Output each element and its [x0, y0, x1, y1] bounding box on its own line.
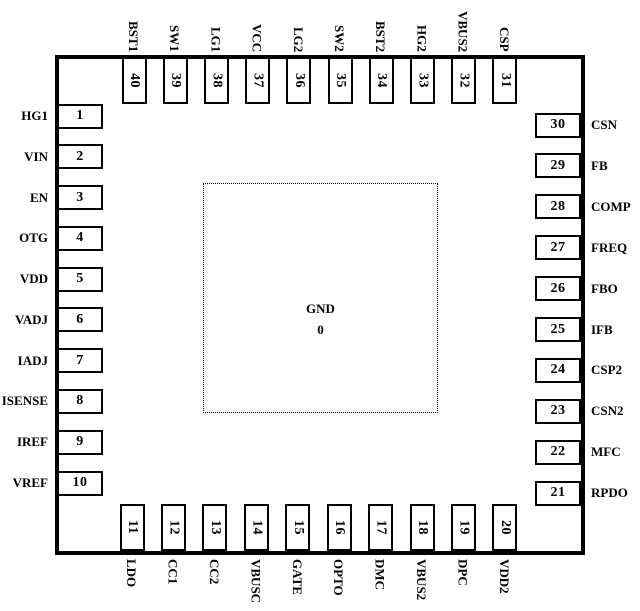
pin-box-right: 23 [535, 399, 581, 424]
pin-number: 9 [76, 434, 84, 450]
pin-box-bottom: 18 [410, 504, 435, 551]
pin-number: 6 [76, 312, 84, 328]
pin-box-left: 5 [57, 267, 103, 292]
pin-label-top: SW1 [166, 25, 182, 52]
pin-label-right: MFC [591, 444, 639, 460]
pin-box-left: 6 [57, 307, 103, 332]
pin-box-bottom: 15 [285, 504, 310, 551]
pin-box-right: 22 [535, 440, 581, 465]
pin-box-right: 25 [535, 317, 581, 342]
pin-label-right: FREQ [591, 240, 639, 256]
pin-label-left: VIN [0, 149, 48, 165]
pin-box-right: 26 [535, 276, 581, 301]
pin-box-top: 34 [369, 57, 394, 104]
pin-label-top: BST2 [372, 21, 388, 52]
pin-box-right: 28 [535, 194, 581, 219]
pin-label-left: VREF [0, 475, 48, 491]
pin-label-bottom: CC2 [206, 559, 222, 584]
pin-label-top: CSP [496, 27, 512, 52]
pin-number: 13 [207, 520, 223, 535]
center-pad-label: GND [306, 298, 335, 319]
pin-number: 1 [76, 108, 84, 124]
pin-label-bottom: VDD2 [496, 559, 512, 594]
center-pad-text: GND 0 [306, 298, 335, 340]
pin-number: 24 [551, 362, 566, 378]
pin-label-left: IREF [0, 434, 48, 450]
pin-box-top: 32 [451, 57, 476, 104]
chip-pinout-diagram: GND 0 1HG12VIN3EN4OTG5VDD6VADJ7IADJ8ISEN… [0, 0, 640, 611]
pin-label-bottom: OPTO [330, 559, 346, 596]
pin-number: 8 [76, 393, 84, 409]
pin-label-top: SW2 [331, 25, 347, 52]
pin-number: 7 [76, 353, 84, 369]
pin-box-bottom: 19 [451, 504, 476, 551]
pin-label-top: LG1 [207, 27, 223, 52]
pin-box-right: 30 [535, 113, 581, 138]
pin-number: 28 [551, 199, 566, 215]
pin-label-right: IFB [591, 322, 639, 338]
pin-box-left: 4 [57, 226, 103, 251]
center-pad-number: 0 [306, 319, 335, 340]
pin-label-bottom: VBUSC [247, 559, 263, 603]
pin-label-top: LG2 [290, 27, 306, 52]
pin-box-right: 29 [535, 153, 581, 178]
pin-number: 10 [73, 475, 88, 491]
pin-number: 23 [551, 403, 566, 419]
pin-label-bottom: VBUS2 [413, 559, 429, 600]
pin-number: 3 [76, 190, 84, 206]
pin-box-top: 35 [328, 57, 353, 104]
pin-number: 22 [551, 444, 566, 460]
pin-number: 35 [332, 73, 348, 88]
pin-number: 19 [456, 520, 472, 535]
pin-number: 21 [551, 485, 566, 501]
pin-number: 37 [250, 73, 266, 88]
pin-box-left: 2 [57, 144, 103, 169]
pin-box-top: 36 [286, 57, 311, 104]
pin-box-top: 39 [163, 57, 188, 104]
pin-label-left: VADJ [0, 312, 48, 328]
pin-number: 25 [551, 322, 566, 338]
pin-label-top: VCC [249, 24, 265, 52]
pin-number: 18 [414, 520, 430, 535]
pin-box-top: 38 [204, 57, 229, 104]
pin-number: 26 [551, 281, 566, 297]
pin-box-left: 10 [57, 471, 103, 496]
pin-box-right: 24 [535, 358, 581, 383]
pin-label-right: CSN [591, 117, 639, 133]
pin-number: 36 [291, 73, 307, 88]
pin-number: 12 [165, 520, 181, 535]
pin-label-bottom: GATE [289, 559, 305, 595]
pin-label-left: IADJ [0, 353, 48, 369]
pin-box-left: 1 [57, 104, 103, 129]
pin-label-left: ISENSE [0, 393, 48, 409]
pin-box-top: 37 [245, 57, 270, 104]
pin-box-bottom: 20 [492, 504, 517, 551]
pin-number: 4 [76, 230, 84, 246]
pin-box-left: 3 [57, 185, 103, 210]
pin-number: 34 [373, 73, 389, 88]
pin-label-right: FB [591, 158, 639, 174]
pin-box-left: 8 [57, 389, 103, 414]
pin-number: 33 [414, 73, 430, 88]
pin-number: 32 [456, 73, 472, 88]
pin-number: 5 [76, 271, 84, 287]
pin-label-right: CSP2 [591, 362, 639, 378]
pin-box-right: 27 [535, 235, 581, 260]
pin-label-left: VDD [0, 271, 48, 287]
pin-box-right: 21 [535, 481, 581, 506]
pin-label-right: COMP [591, 199, 639, 215]
pin-number: 15 [290, 520, 306, 535]
pin-number: 31 [497, 73, 513, 88]
pin-label-left: EN [0, 190, 48, 206]
pin-label-left: HG1 [0, 108, 48, 124]
pin-box-left: 7 [57, 348, 103, 373]
pin-number: 20 [497, 520, 513, 535]
pin-label-bottom: DPC [455, 559, 471, 586]
pin-number: 40 [126, 73, 142, 88]
pin-number: 27 [551, 240, 566, 256]
pin-box-top: 31 [492, 57, 517, 104]
pin-label-top: BST1 [125, 21, 141, 52]
pin-box-left: 9 [57, 430, 103, 455]
pin-number: 29 [551, 158, 566, 174]
pin-box-bottom: 14 [244, 504, 269, 551]
pin-number: 16 [331, 520, 347, 535]
pin-label-left: OTG [0, 230, 48, 246]
pin-box-bottom: 16 [327, 504, 352, 551]
pin-label-bottom: LDO [123, 559, 139, 587]
pin-number: 2 [76, 149, 84, 165]
pin-label-bottom: CC1 [164, 559, 180, 584]
pin-number: 38 [208, 73, 224, 88]
pin-label-right: FBO [591, 281, 639, 297]
pin-number: 17 [373, 520, 389, 535]
pin-number: 11 [124, 520, 140, 534]
center-ground-pad: GND 0 [203, 183, 438, 413]
pin-box-bottom: 17 [368, 504, 393, 551]
pin-number: 39 [167, 73, 183, 88]
pin-box-bottom: 12 [161, 504, 186, 551]
pin-label-right: CSN2 [591, 403, 639, 419]
pin-box-bottom: 11 [120, 504, 145, 551]
pin-box-bottom: 13 [202, 504, 227, 551]
pin-box-top: 40 [122, 57, 147, 104]
pin-label-top: VBUS2 [455, 11, 471, 52]
pin-number: 30 [551, 117, 566, 133]
pin-label-bottom: DMC [372, 559, 388, 590]
pin-label-right: RPDO [591, 485, 639, 501]
pin-box-top: 33 [410, 57, 435, 104]
pin-label-top: HG2 [413, 25, 429, 52]
pin-number: 14 [248, 520, 264, 535]
